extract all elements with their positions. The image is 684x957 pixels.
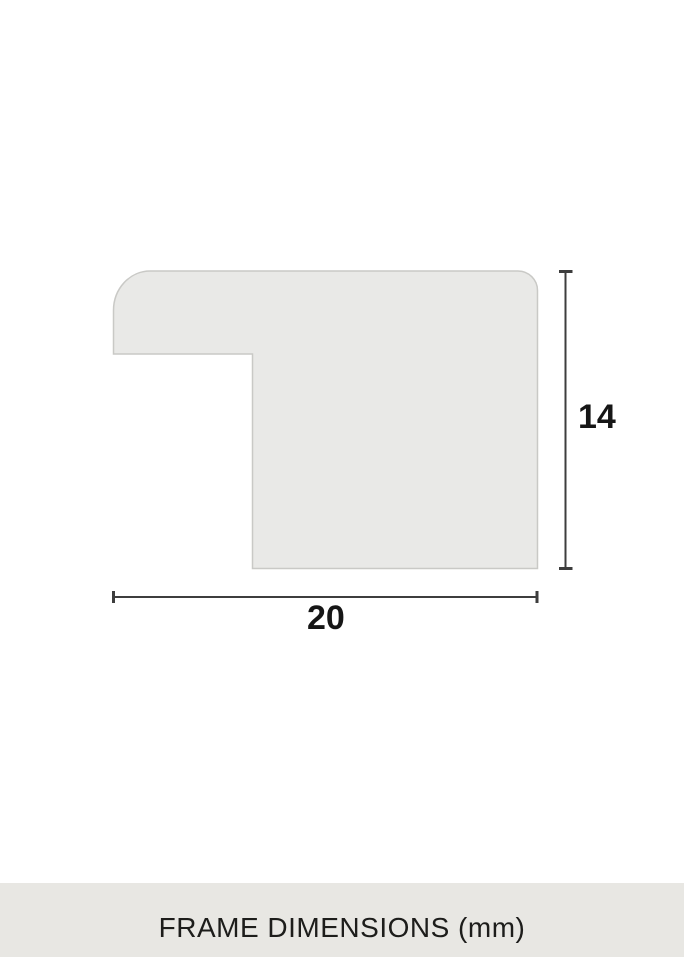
frame-profile-shape xyxy=(114,271,538,569)
height-dimension-value: 14 xyxy=(578,400,616,434)
caption-bar: FRAME DIMENSIONS (mm) xyxy=(0,883,684,957)
width-dimension-value: 20 xyxy=(307,601,345,635)
frame-dimensions-diagram: 14 20 xyxy=(0,0,684,957)
caption-text: FRAME DIMENSIONS (mm) xyxy=(159,912,526,944)
height-dimension-line xyxy=(559,272,573,569)
diagram-canvas xyxy=(0,0,684,957)
